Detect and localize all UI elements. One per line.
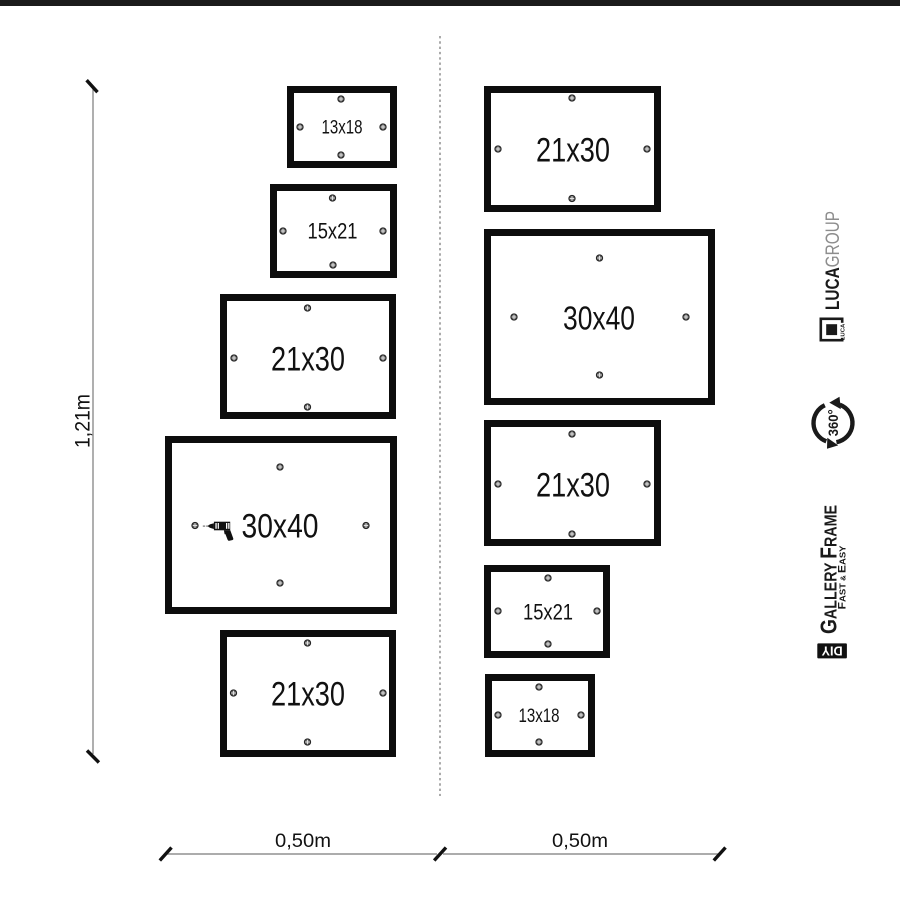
svg-text:21x30: 21x30 <box>536 466 610 504</box>
svg-text:30x40: 30x40 <box>242 508 319 546</box>
svg-text:13x18: 13x18 <box>519 705 560 727</box>
svg-text:13x18: 13x18 <box>322 117 363 139</box>
svg-text:DIY: DIY <box>821 643 843 657</box>
svg-text:0,50m: 0,50m <box>552 830 608 852</box>
svg-text:21x30: 21x30 <box>271 675 345 713</box>
svg-text:LUCAGROUP: LUCAGROUP <box>822 211 844 310</box>
svg-text:30x40: 30x40 <box>563 300 635 337</box>
svg-text:1,21m: 1,21m <box>71 394 95 448</box>
svg-text:LUCA: LUCA <box>841 323 847 340</box>
svg-text:21x30: 21x30 <box>536 131 610 169</box>
svg-text:360°: 360° <box>826 409 841 436</box>
svg-text:15x21: 15x21 <box>523 600 573 625</box>
svg-text:21x30: 21x30 <box>271 340 345 378</box>
svg-text:0,50m: 0,50m <box>275 830 331 852</box>
svg-text:15x21: 15x21 <box>308 218 358 243</box>
